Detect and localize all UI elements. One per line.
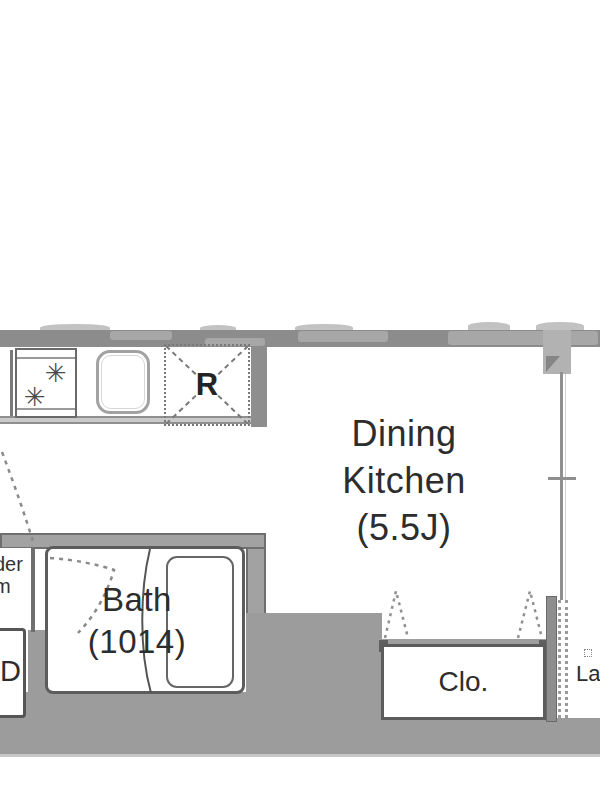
top-wall [0, 330, 600, 347]
counter-left-edge [10, 350, 13, 418]
laundry-fragment-text: La [576, 661, 600, 686]
window-line [560, 372, 563, 600]
dining-kitchen-label: Dining Kitchen (5.5J) [304, 410, 504, 551]
watermark-shape [536, 322, 584, 330]
bath-size: (1014) [47, 621, 227, 663]
closet-label: Clo. [381, 644, 546, 720]
dining-kitchen-line1: Dining [304, 410, 504, 457]
watermark-shape [448, 331, 598, 345]
watermark-shape [110, 331, 172, 340]
closet-fold-door [518, 591, 542, 638]
dining-kitchen-size: (5.5J) [304, 504, 504, 551]
sliding-door-dots [565, 600, 568, 718]
powder-room-label-fragment: der m [0, 553, 34, 597]
refrigerator-label: R [164, 344, 250, 426]
bath-label: Bath (1014) [47, 579, 227, 663]
wall-fill [246, 613, 382, 754]
sliding-door-dots [558, 600, 561, 718]
stove-burner-icon: ✳ [45, 360, 67, 386]
window-line-faint [565, 374, 566, 600]
laundry-mark [584, 649, 592, 657]
powder-fragment-line1: der [0, 553, 34, 575]
stove-burner-icon: ✳ [24, 384, 46, 410]
washer-label-fragment: D [0, 655, 26, 688]
dining-kitchen-line2: Kitchen [304, 457, 504, 504]
refrigerator-label-text: R [196, 367, 218, 403]
plan-bottom-edge [0, 754, 600, 757]
closet-fold-door [385, 591, 408, 638]
powder-fragment-line2: m [0, 575, 34, 597]
watermark-shape [298, 331, 388, 342]
window-tick [548, 477, 576, 480]
wall-fill [380, 718, 600, 754]
entry-door-arc [2, 452, 34, 545]
floor-plan-image: ✳ ✳ Dining Kitchen (5 [0, 0, 600, 800]
washer-fragment-text: D [0, 655, 21, 687]
wall-stub [251, 347, 267, 427]
right-wall [546, 596, 557, 722]
sink-inner-line [101, 355, 145, 409]
stove: ✳ ✳ [15, 348, 77, 418]
laundry-label-fragment: La [576, 661, 600, 687]
kitchen-sink [96, 350, 150, 414]
watermark-shape [468, 322, 510, 330]
wall-corner-shade [546, 356, 560, 372]
closet-label-text: Clo. [439, 666, 489, 698]
wall-fill [0, 692, 246, 754]
bath-name: Bath [47, 579, 227, 621]
